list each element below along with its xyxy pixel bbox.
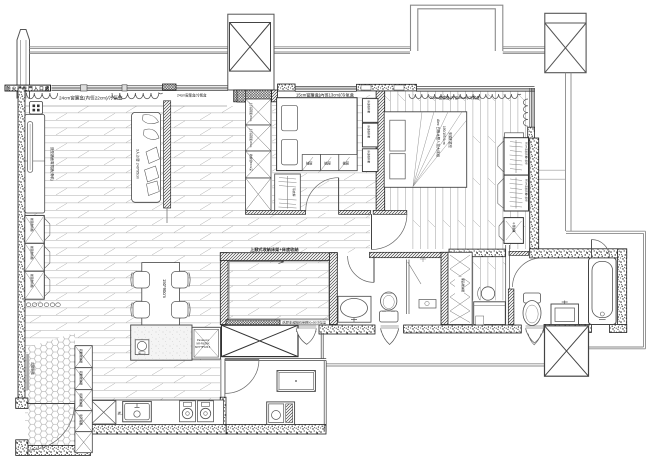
svg-text:68.5*75*183.5: 68.5*75*183.5 xyxy=(195,346,211,349)
svg-text:Panasonic: Panasonic xyxy=(197,338,210,342)
svg-text:床邊收納櫃: 床邊收納櫃 xyxy=(367,101,371,114)
svg-text:床邊收納櫃: 床邊收納櫃 xyxy=(367,126,371,139)
svg-text:餐邊收納櫃: 餐邊收納櫃 xyxy=(30,218,34,232)
svg-text:上下鋪床組30cm: 上下鋪床組30cm xyxy=(249,128,253,147)
svg-text:(乳膠漆)壁紙石英磚50x50/冷氣盒: (乳膠漆)壁紙石英磚50x50/冷氣盒 xyxy=(282,320,326,325)
svg-text:鞋櫃收納櫃: 鞋櫃收納櫃 xyxy=(79,371,83,385)
svg-text:抽屜: 抽屜 xyxy=(306,161,313,166)
svg-text:掃具收納櫃: 掃具收納櫃 xyxy=(79,393,83,407)
svg-text:24cm窗簾盒/冷氣盒: 24cm窗簾盒/冷氣盒 xyxy=(177,93,207,98)
svg-text:收納櫃60cm深: 收納櫃60cm深 xyxy=(249,154,253,171)
svg-text:玄關鞋櫃: 玄關鞋櫃 xyxy=(31,362,36,376)
svg-text:斗櫃抽屜: 斗櫃抽屜 xyxy=(512,222,516,233)
svg-text:吊衣桿: 吊衣桿 xyxy=(292,188,296,197)
svg-text:床頭附插座: 床頭附插座 xyxy=(448,132,453,149)
svg-text:60cm深吊衣櫃+吊桿: 60cm深吊衣櫃+吊桿 xyxy=(525,179,529,202)
svg-text:抽屜: 抽屜 xyxy=(324,161,331,166)
svg-text:備品收納櫃: 備品收納櫃 xyxy=(461,278,465,292)
svg-text:防火逃生門入口處: 防火逃生門入口處 xyxy=(6,85,50,92)
svg-text:24cm窗簾盒(內徑22cm)/冷氣盒: 24cm窗簾盒(內徑22cm)/冷氣盒 xyxy=(59,95,123,102)
svg-text:造型牆面電視牆(滑軌): 造型牆面電視牆(滑軌) xyxy=(50,147,55,181)
svg-text:電源箱櫃: 電源箱櫃 xyxy=(79,414,83,425)
svg-text:150*90cm: 150*90cm xyxy=(162,279,167,298)
svg-text:床邊收納櫃: 床邊收納櫃 xyxy=(367,151,371,164)
svg-text:抽屜: 抽屜 xyxy=(343,161,350,166)
svg-text:190/195.5cm: 190/195.5cm xyxy=(442,126,446,145)
svg-text:3人沙發 240*95cm: 3人沙發 240*95cm xyxy=(136,149,141,179)
svg-text:上下鋪床組30cm: 上下鋪床組30cm xyxy=(249,102,253,121)
svg-text:上掀式收納床架+床底收納: 上掀式收納床架+床底收納 xyxy=(250,246,299,253)
svg-text:21cm窗簾盒(內徑19cm)/冷氣盒: 21cm窗簾盒(內徑19cm)/冷氣盒 xyxy=(430,95,480,100)
svg-text:餐邊收納櫃: 餐邊收納櫃 xyxy=(30,274,34,288)
svg-text:60cm深吊衣櫃+吊桿: 60cm深吊衣櫃+吊桿 xyxy=(525,142,529,165)
svg-text:鞋櫃收納櫃: 鞋櫃收納櫃 xyxy=(79,349,83,363)
svg-text:Alex 白橡木雙人加大床組: Alex 白橡木雙人加大床組 xyxy=(436,119,441,158)
svg-text:餐邊收納櫃: 餐邊收納櫃 xyxy=(30,246,34,260)
